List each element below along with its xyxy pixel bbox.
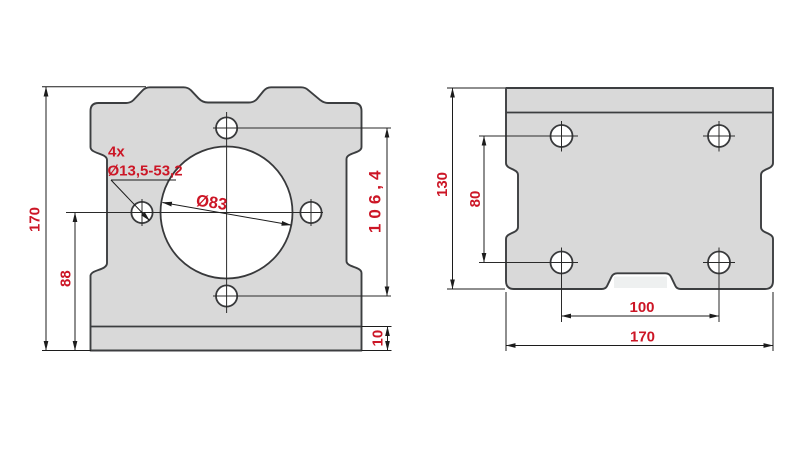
svg-text:10: 10 [369, 330, 386, 347]
svg-text:4x: 4x [108, 144, 125, 161]
svg-text:80: 80 [467, 191, 484, 208]
svg-text:170: 170 [630, 329, 655, 346]
svg-text:88: 88 [57, 270, 74, 287]
svg-text:Ø13,5-53,2: Ø13,5-53,2 [108, 163, 183, 180]
svg-text:100: 100 [629, 299, 654, 316]
svg-text:106,4: 106,4 [366, 166, 385, 234]
svg-text:170: 170 [27, 207, 44, 232]
svg-text:130: 130 [434, 172, 451, 197]
